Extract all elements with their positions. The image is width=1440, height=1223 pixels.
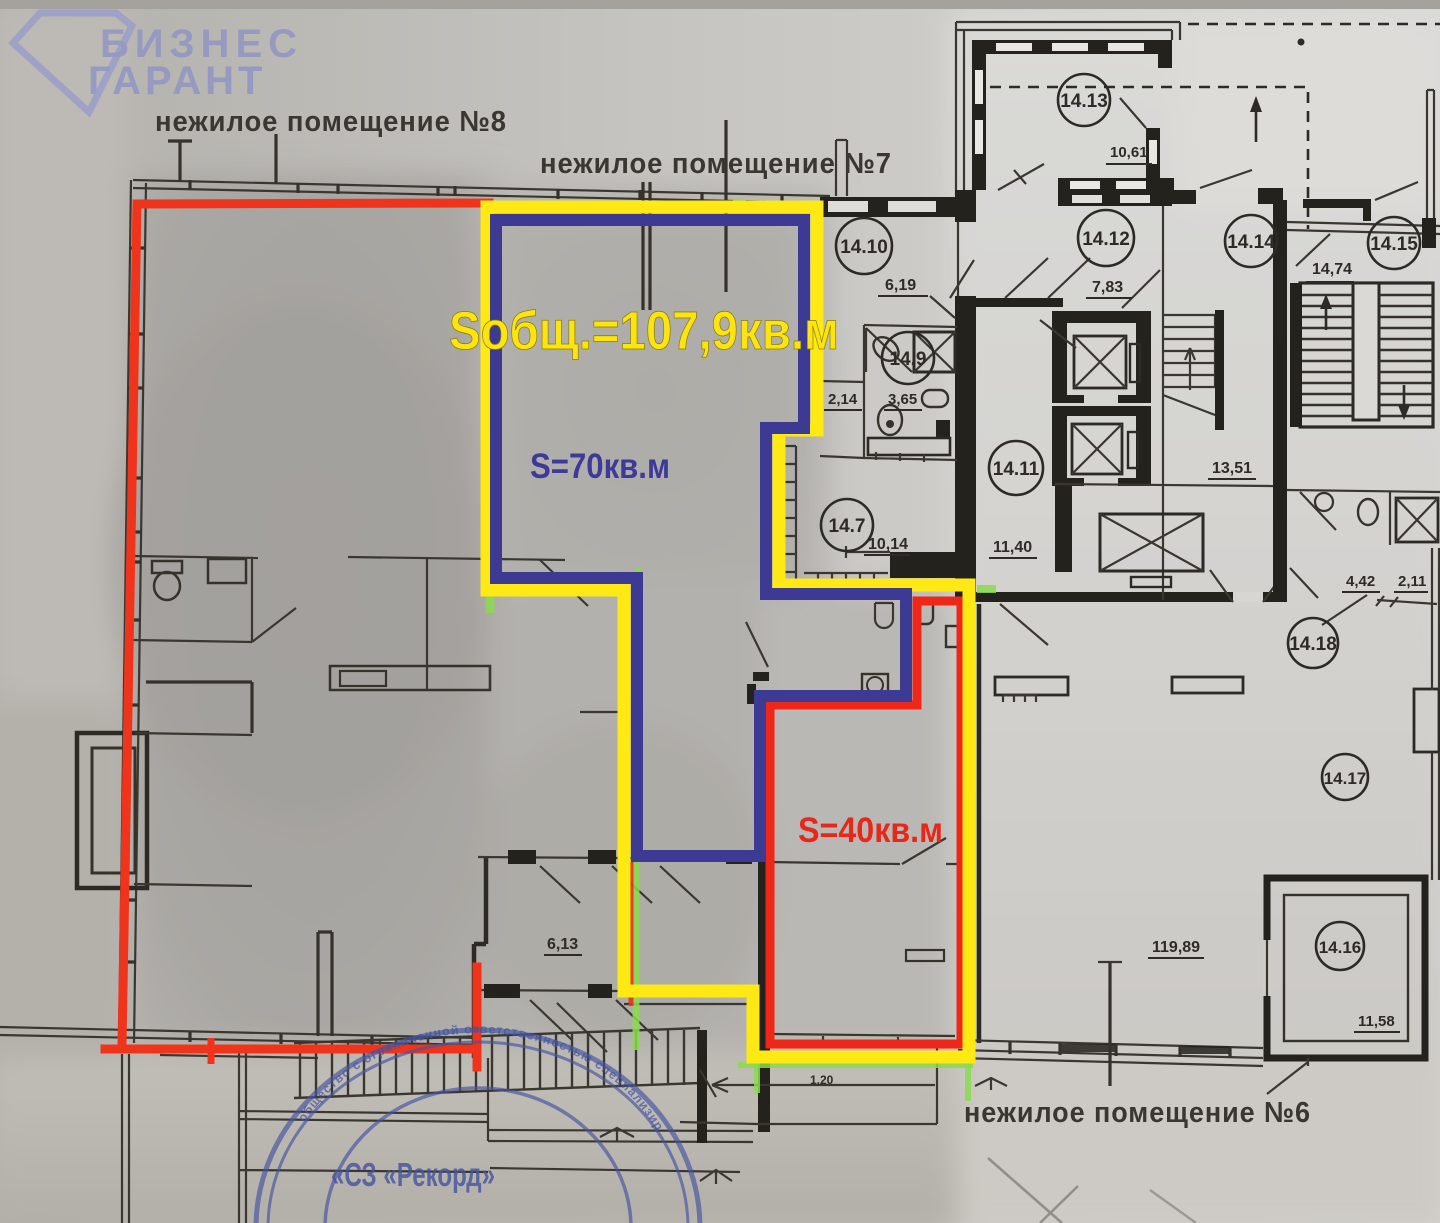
svg-text:11,58: 11,58	[1358, 1013, 1395, 1030]
svg-text:2,14: 2,14	[828, 391, 858, 408]
svg-text:119,89: 119,89	[1152, 939, 1200, 956]
svg-text:14.11: 14.11	[993, 459, 1040, 480]
svg-text:Sобщ.=107,9кв.м: Sобщ.=107,9кв.м	[449, 301, 839, 361]
svg-text:4,42: 4,42	[1346, 573, 1375, 590]
svg-text:ГАРАНТ: ГАРАНТ	[88, 59, 266, 103]
svg-text:14.10: 14.10	[840, 237, 888, 258]
svg-text:1,20: 1,20	[810, 1073, 834, 1087]
svg-text:3,65: 3,65	[888, 391, 917, 408]
svg-text:14.13: 14.13	[1060, 91, 1108, 112]
svg-text:10,61: 10,61	[1110, 144, 1148, 161]
svg-text:14.12: 14.12	[1082, 229, 1130, 250]
svg-text:нежилое помещение №8: нежилое помещение №8	[155, 106, 507, 138]
svg-text:7,83: 7,83	[1092, 279, 1123, 296]
svg-text:14.16: 14.16	[1319, 938, 1362, 957]
svg-text:14.18: 14.18	[1289, 634, 1337, 655]
svg-text:нежилое помещение №6: нежилое помещение №6	[964, 1097, 1311, 1129]
svg-text:«СЗ «Рекорд»: «СЗ «Рекорд»	[331, 1156, 495, 1193]
svg-text:нежилое помещение №7: нежилое помещение №7	[540, 148, 892, 180]
svg-text:14.9: 14.9	[890, 349, 927, 370]
svg-text:6,19: 6,19	[885, 277, 916, 294]
svg-text:13,51: 13,51	[1212, 460, 1252, 477]
svg-text:14.15: 14.15	[1370, 234, 1418, 255]
svg-text:14.14: 14.14	[1227, 232, 1275, 253]
svg-text:10,14: 10,14	[868, 536, 908, 553]
svg-text:6,13: 6,13	[547, 936, 578, 953]
svg-text:14,74: 14,74	[1312, 261, 1352, 278]
svg-text:S=40кв.м: S=40кв.м	[798, 811, 943, 850]
svg-text:2,11: 2,11	[1398, 573, 1426, 590]
svg-text:14.17: 14.17	[1324, 769, 1367, 788]
svg-text:11,40: 11,40	[993, 539, 1032, 556]
svg-text:14.7: 14.7	[829, 516, 866, 537]
svg-text:S=70кв.м: S=70кв.м	[530, 447, 670, 486]
